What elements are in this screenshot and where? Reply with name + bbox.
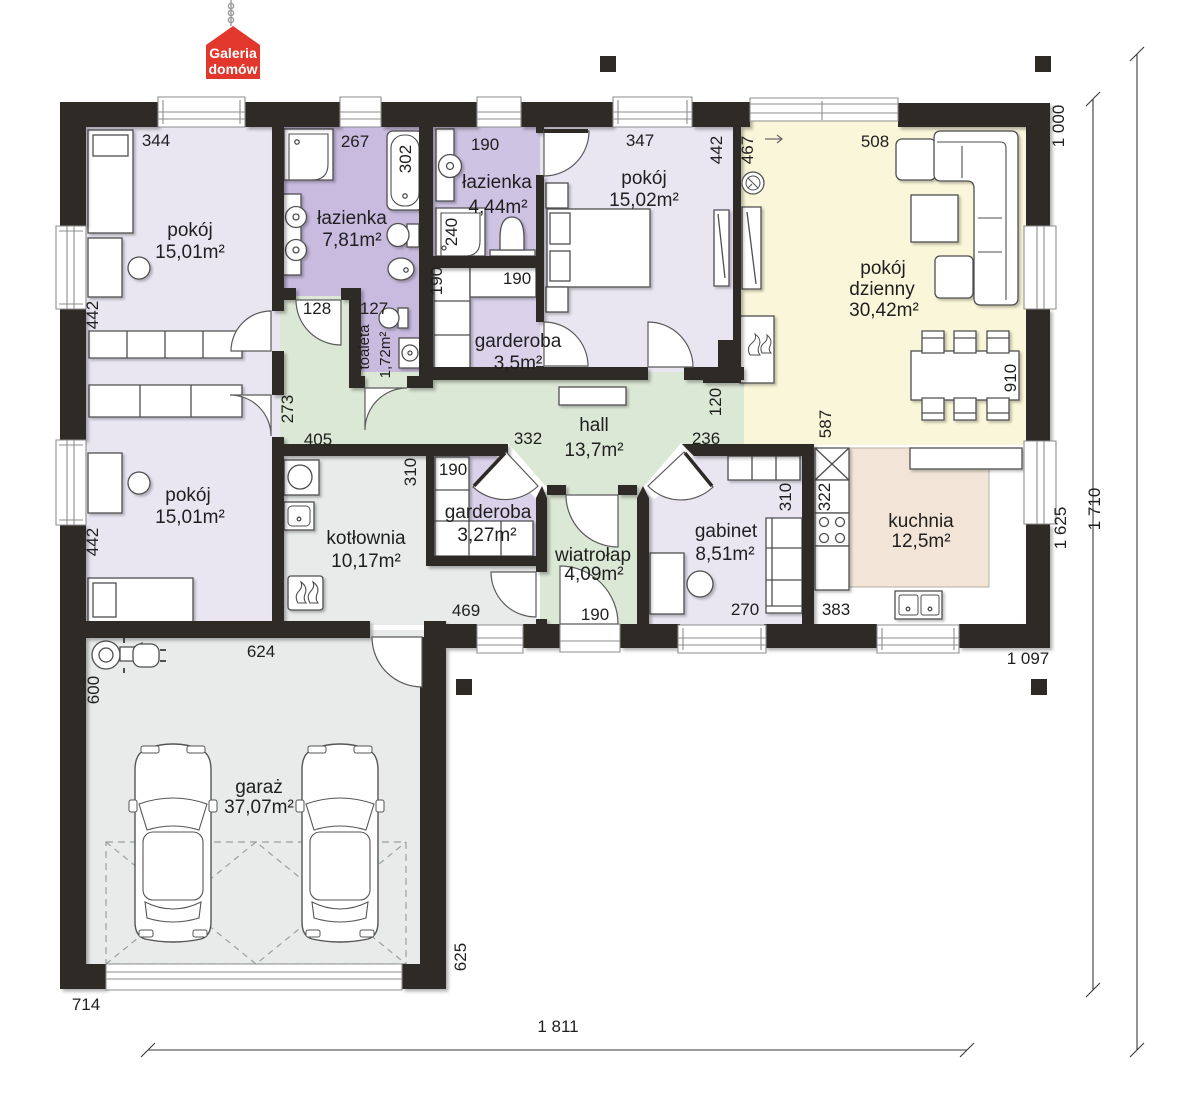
svg-text:332: 332 (514, 429, 542, 448)
svg-text:273: 273 (278, 395, 297, 423)
svg-text:236: 236 (692, 429, 720, 448)
svg-text:442: 442 (83, 301, 102, 329)
svg-text:714: 714 (72, 995, 100, 1014)
svg-text:347: 347 (626, 131, 654, 150)
svg-text:442: 442 (707, 136, 726, 164)
svg-text:łazienka: łazienka (462, 172, 532, 193)
svg-text:domów: domów (209, 61, 258, 77)
svg-text:120: 120 (706, 388, 725, 416)
svg-text:wiatrołap: wiatrołap (554, 545, 631, 566)
svg-text:1 097: 1 097 (1007, 649, 1050, 668)
svg-text:190: 190 (471, 135, 499, 154)
svg-text:4,44m²: 4,44m² (468, 197, 527, 218)
svg-text:3,5m²: 3,5m² (494, 353, 543, 374)
svg-text:1 000: 1 000 (1049, 105, 1068, 148)
svg-text:15,01m²: 15,01m² (155, 507, 225, 528)
svg-text:13,7m²: 13,7m² (564, 440, 623, 461)
svg-text:467: 467 (738, 136, 757, 164)
svg-text:garderoba: garderoba (475, 331, 562, 352)
svg-text:310: 310 (776, 483, 795, 511)
svg-text:322: 322 (815, 483, 834, 511)
svg-text:łazienka: łazienka (317, 208, 387, 229)
svg-text:toaleta: toaleta (356, 324, 373, 370)
svg-text:190: 190 (503, 269, 531, 288)
svg-text:37,07m²: 37,07m² (224, 797, 294, 818)
svg-text:3,27m²: 3,27m² (457, 525, 516, 546)
svg-text:kuchnia: kuchnia (888, 511, 954, 532)
svg-text:7,81m²: 7,81m² (322, 230, 381, 251)
svg-text:garaż: garaż (235, 777, 283, 798)
svg-text:12,5m²: 12,5m² (891, 531, 950, 552)
svg-text:302: 302 (396, 145, 415, 173)
svg-text:pokój: pokój (621, 168, 666, 189)
svg-text:gabinet: gabinet (695, 521, 758, 542)
svg-text:15,01m²: 15,01m² (155, 242, 225, 263)
svg-text:30,42m²: 30,42m² (849, 300, 919, 321)
svg-text:270: 270 (731, 600, 759, 619)
svg-text:127: 127 (360, 299, 388, 318)
svg-text:442: 442 (83, 528, 102, 556)
svg-text:1,72m²: 1,72m² (377, 332, 394, 379)
svg-text:508: 508 (861, 132, 889, 151)
svg-text:10,17m²: 10,17m² (331, 551, 401, 572)
svg-text:pokój: pokój (165, 485, 210, 506)
svg-text:190: 190 (439, 460, 467, 479)
svg-text:267: 267 (341, 132, 369, 151)
svg-text:kotłownia: kotłownia (326, 528, 406, 549)
svg-text:910: 910 (1001, 364, 1020, 392)
svg-text:310: 310 (401, 458, 420, 486)
svg-text:1 710: 1 710 (1085, 488, 1104, 531)
svg-text:405: 405 (304, 430, 332, 449)
svg-text:190: 190 (427, 267, 446, 295)
svg-text:624: 624 (247, 642, 275, 661)
svg-text:625: 625 (451, 943, 470, 971)
svg-text:Galeria: Galeria (209, 45, 257, 61)
svg-text:344: 344 (142, 131, 170, 150)
svg-text:pokój: pokój (167, 220, 212, 241)
svg-text:pokój: pokój (860, 258, 905, 279)
svg-text:garderoba: garderoba (445, 502, 532, 523)
svg-text:4,09m²: 4,09m² (564, 564, 623, 585)
svg-text:1 625: 1 625 (1051, 507, 1070, 550)
svg-text:587: 587 (816, 410, 835, 438)
svg-text:hall: hall (579, 415, 609, 436)
svg-text:600: 600 (84, 676, 103, 704)
svg-text:dzienny: dzienny (849, 279, 915, 300)
svg-text:383: 383 (822, 600, 850, 619)
svg-text:240: 240 (442, 218, 461, 246)
svg-text:128: 128 (303, 299, 331, 318)
svg-text:190: 190 (581, 605, 609, 624)
svg-text:469: 469 (452, 601, 480, 620)
svg-text:8,51m²: 8,51m² (695, 544, 754, 565)
svg-text:1 811: 1 811 (537, 1017, 578, 1036)
svg-text:15,02m²: 15,02m² (609, 190, 679, 211)
